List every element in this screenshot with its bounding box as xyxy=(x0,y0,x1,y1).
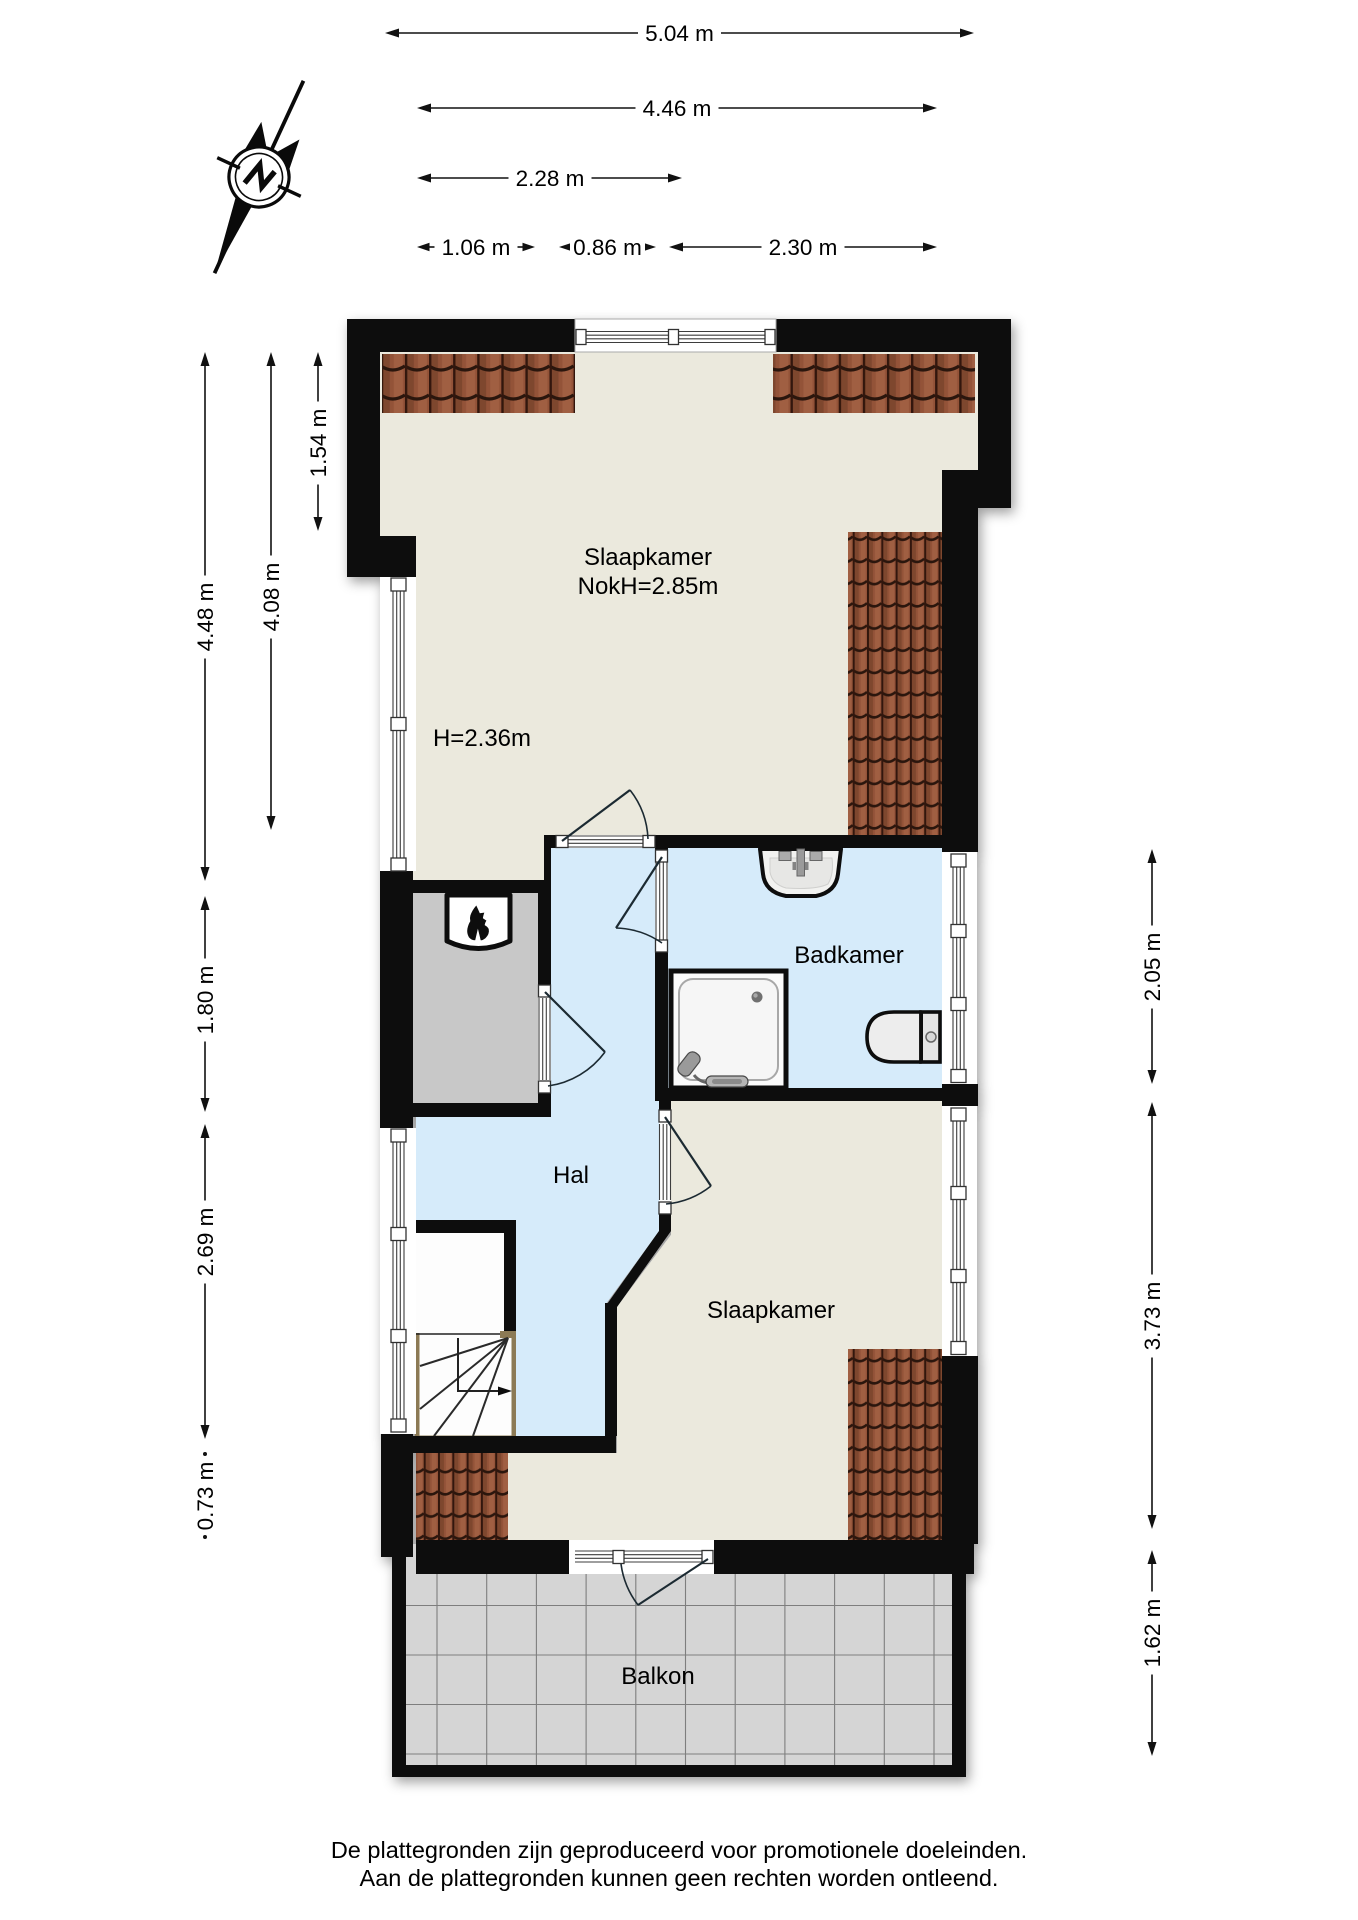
svg-text:Balkon: Balkon xyxy=(621,1663,694,1690)
svg-text:Slaapkamer: Slaapkamer xyxy=(707,1297,835,1324)
svg-text:H=2.36m: H=2.36m xyxy=(433,725,531,752)
svg-text:4.48 m: 4.48 m xyxy=(193,583,218,652)
svg-text:0.73 m: 0.73 m xyxy=(193,1462,218,1531)
svg-text:Slaapkamer: Slaapkamer xyxy=(584,544,712,571)
svg-text:Hal: Hal xyxy=(553,1162,589,1189)
svg-text:De plattegronden zijn geproduc: De plattegronden zijn geproduceerd voor … xyxy=(331,1837,1027,1863)
svg-text:4.46 m: 4.46 m xyxy=(643,96,712,121)
svg-text:Badkamer: Badkamer xyxy=(794,942,903,969)
svg-text:3.73 m: 3.73 m xyxy=(1140,1282,1165,1351)
svg-text:1.06 m: 1.06 m xyxy=(442,235,511,260)
svg-text:Aan de plattegronden kunnen ge: Aan de plattegronden kunnen geen rechten… xyxy=(360,1865,999,1891)
svg-text:0.86 m: 0.86 m xyxy=(573,235,642,260)
svg-text:2.30 m: 2.30 m xyxy=(769,235,838,260)
svg-text:NokH=2.85m: NokH=2.85m xyxy=(578,573,719,600)
svg-text:1.80 m: 1.80 m xyxy=(193,966,218,1035)
svg-text:2.05 m: 2.05 m xyxy=(1140,933,1165,1002)
svg-text:2.28 m: 2.28 m xyxy=(516,166,585,191)
svg-text:1.62 m: 1.62 m xyxy=(1140,1599,1165,1668)
svg-text:4.08 m: 4.08 m xyxy=(259,563,284,632)
svg-text:5.04 m: 5.04 m xyxy=(645,21,714,46)
svg-text:2.69 m: 2.69 m xyxy=(193,1208,218,1277)
svg-text:1.54 m: 1.54 m xyxy=(306,409,331,478)
